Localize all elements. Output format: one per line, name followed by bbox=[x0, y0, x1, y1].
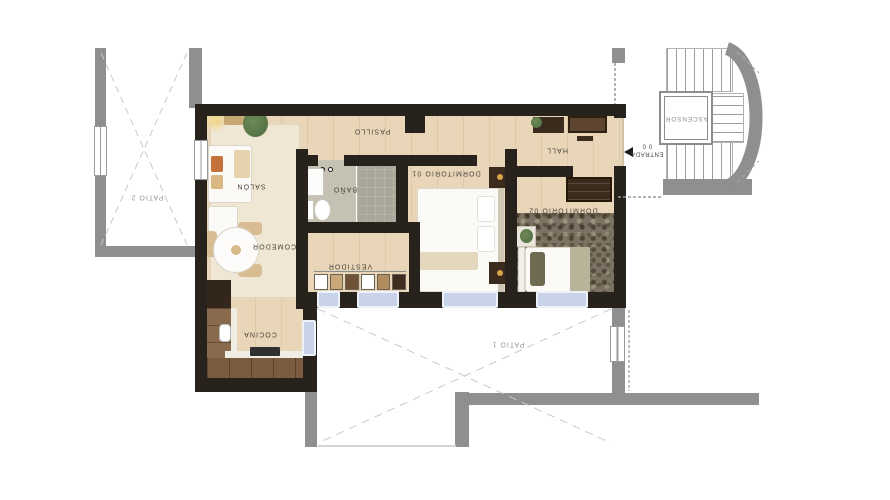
patio2-window bbox=[94, 126, 107, 176]
wardrobe-item bbox=[361, 274, 375, 290]
patio2-wall-left-upper bbox=[95, 48, 106, 126]
window-patio1-4 bbox=[536, 291, 588, 308]
bed1-pillow-2 bbox=[477, 226, 495, 252]
nightstand-1-lamp bbox=[497, 174, 503, 180]
elevator-cab: ASCENSOR bbox=[664, 96, 708, 140]
bed2-blanket bbox=[570, 247, 590, 292]
patio2-label: PATIO 2 bbox=[131, 194, 164, 201]
cocina-label: COCINA bbox=[243, 331, 277, 338]
toilet-bowl bbox=[314, 199, 331, 221]
bed1-runner bbox=[420, 252, 478, 270]
dormitorio1-label: DORMITORIO 01 bbox=[411, 170, 480, 177]
pasillo-label: PASILLO bbox=[354, 128, 390, 135]
bedroom2-plant bbox=[520, 229, 533, 243]
patio1-label: PATIO 1 bbox=[492, 341, 525, 348]
toilet-tank bbox=[307, 200, 314, 220]
kitchen-sink bbox=[219, 324, 231, 342]
patio2-wall-left-lower bbox=[95, 176, 106, 257]
window-patio1-1 bbox=[317, 291, 340, 308]
elevator-label: ASCENSOR bbox=[665, 115, 708, 122]
elevator-box: ASCENSOR bbox=[659, 91, 713, 145]
patio2-wall-bottom bbox=[95, 246, 196, 257]
sofa-pillow-orange bbox=[211, 156, 223, 172]
wall-kitchen-bottom bbox=[195, 378, 317, 392]
salon-label: SALÓN bbox=[236, 183, 265, 190]
bano-label: BAÑO bbox=[333, 186, 357, 193]
dormitorio2-label: DORMITORIO 02 bbox=[528, 207, 597, 214]
stair-flight-right bbox=[711, 93, 744, 143]
floorplan-canvas: PATIO 2 bbox=[0, 0, 890, 500]
patio1-stub-right-lower bbox=[612, 362, 625, 393]
bedroom2-wardrobe bbox=[566, 177, 612, 202]
bed1-pillow-1 bbox=[477, 196, 495, 222]
nightstand-2-lamp bbox=[497, 270, 503, 276]
wardrobe-strip bbox=[314, 271, 406, 290]
stair-flight-top bbox=[666, 48, 733, 92]
stair-wall-bottom bbox=[663, 179, 752, 195]
entrance-threshold bbox=[622, 118, 624, 166]
comedor-label: COMEDOR bbox=[252, 243, 296, 250]
bed2-pillow bbox=[530, 252, 545, 286]
salon-window-left bbox=[194, 140, 208, 180]
patio1-stub-left bbox=[305, 392, 317, 447]
entrance-floor-text: 0 0 bbox=[631, 142, 664, 150]
bed2-headboard bbox=[518, 247, 525, 292]
patio1-corner-post bbox=[455, 392, 469, 447]
stair-stub-top bbox=[612, 48, 625, 63]
wall-hall-bedroom2 bbox=[505, 166, 573, 177]
vestidor-label: VESTIDOR bbox=[328, 263, 373, 270]
patio1-stub-right-upper bbox=[612, 308, 625, 326]
shower-area bbox=[356, 160, 399, 224]
patio2-wall-right-stub bbox=[189, 48, 202, 108]
fridge-unit bbox=[207, 280, 231, 308]
wardrobe-item bbox=[377, 274, 391, 290]
sofa-blanket bbox=[234, 150, 250, 178]
patio1-wall-long bbox=[469, 393, 759, 405]
wall-bedroom1-top bbox=[408, 155, 477, 166]
hall-shelf bbox=[577, 136, 593, 141]
kitchen-window bbox=[302, 320, 316, 356]
table-centerpiece bbox=[231, 245, 241, 255]
window-patio1-2 bbox=[357, 291, 399, 308]
wardrobe-item bbox=[314, 274, 328, 290]
wardrobe-item bbox=[392, 274, 406, 290]
wall-vestidor-bedroom1 bbox=[409, 233, 420, 293]
hall-bench bbox=[568, 116, 607, 133]
wall-right-top bbox=[614, 104, 626, 118]
hall-label: HALL bbox=[546, 147, 568, 154]
patio1-window-right bbox=[610, 326, 625, 362]
hall-plant bbox=[531, 117, 542, 128]
bathroom-sink bbox=[307, 168, 324, 196]
wall-bathroom-bedroom1 bbox=[396, 155, 408, 233]
sofa-pillow-tan bbox=[211, 175, 223, 189]
wall-top bbox=[195, 104, 626, 116]
wall-right-lower bbox=[614, 166, 626, 308]
wardrobe-item bbox=[345, 274, 359, 290]
wardrobe-item bbox=[330, 274, 344, 290]
bathroom-door-mark-ring bbox=[328, 167, 333, 172]
entrance-label: ENTRADA 0 0 bbox=[631, 142, 664, 157]
window-patio1-3 bbox=[442, 291, 498, 308]
cooktop bbox=[250, 347, 280, 356]
wall-pasillo-stub bbox=[405, 116, 425, 133]
wall-bathroom-top-left bbox=[296, 155, 318, 166]
entrance-text: ENTRADA bbox=[631, 149, 664, 157]
